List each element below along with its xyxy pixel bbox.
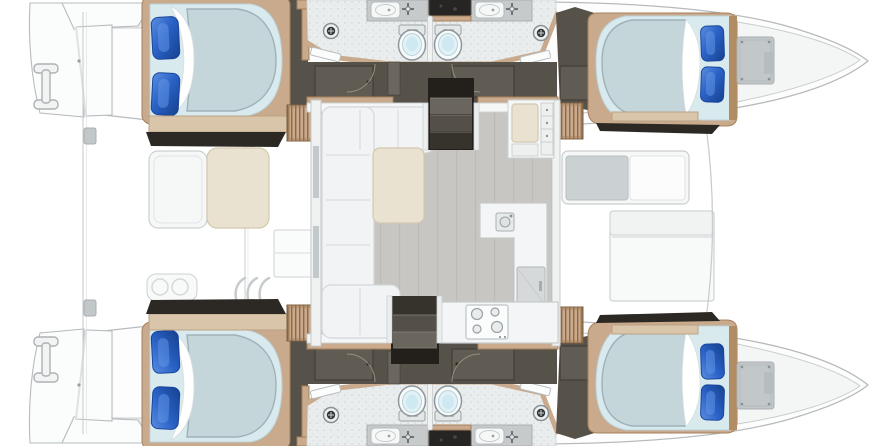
- bench-cushion: [566, 156, 628, 200]
- window: [313, 226, 319, 278]
- refrigerator: [517, 267, 545, 305]
- deck-module: [274, 230, 314, 277]
- salon-left-wall: [311, 100, 321, 346]
- forward-table: [610, 211, 714, 301]
- gate-hinge: [84, 128, 96, 144]
- salon-table: [373, 148, 424, 223]
- stove: [466, 305, 508, 339]
- gate-hinge: [84, 300, 96, 316]
- companionway-bottom: [387, 296, 442, 364]
- cockpit-seat: [149, 151, 207, 228]
- catamaran-deck-plan: [0, 0, 890, 446]
- cockpit-table: [207, 148, 269, 228]
- window: [313, 146, 319, 198]
- companionway-top: [423, 78, 479, 150]
- helm-seat: [147, 274, 197, 301]
- galley-sink: [496, 213, 514, 231]
- floor-plan-canvas: [0, 0, 890, 446]
- nav-station: [508, 100, 554, 158]
